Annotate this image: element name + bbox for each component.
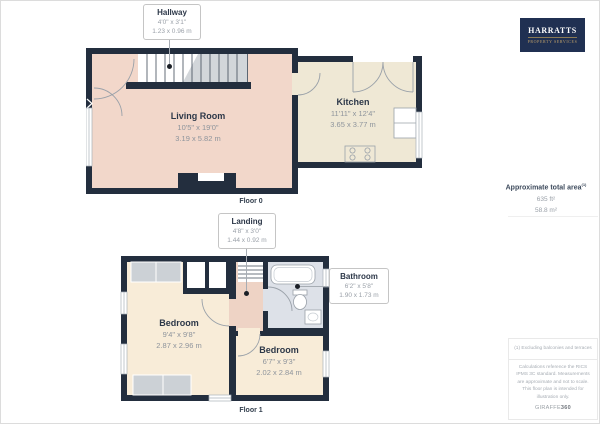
bathroom-label-box: Bathroom 6'2" x 5'8" 1.90 x 1.73 m: [329, 268, 389, 304]
stairs: [138, 54, 248, 82]
giraffe360-credit: GIRAFFE360: [514, 405, 592, 411]
bottom-wall-window: [209, 395, 231, 401]
hallway-leader-dot: [167, 64, 172, 69]
toilet-icon: [293, 290, 307, 310]
wardrobe-bottom: [133, 375, 191, 395]
total-area-title: Approximate total area(1): [491, 182, 600, 191]
hallway-name: Hallway: [148, 8, 196, 17]
footnote-box: (1) Excluding balconies and terraces: [508, 338, 598, 360]
bathtub-icon: [271, 265, 315, 284]
landing-leader-line: [246, 247, 247, 291]
sink-icon: [305, 310, 321, 324]
agency-logo: HARRATTS PROPERTY SERVICES: [520, 18, 585, 52]
footnote-text: (1) Excluding balconies and terraces: [514, 345, 592, 352]
landing-label-box: Landing 4'8" x 3'0" 1.44 x 0.92 m: [218, 213, 276, 249]
footnote-ref: (1): [581, 182, 586, 187]
agency-logo-tagline: PROPERTY SERVICES: [528, 37, 578, 45]
bathroom-leader-dot: [295, 284, 300, 289]
sidebar: HARRATTS PROPERTY SERVICES Approximate t…: [491, 1, 600, 424]
floorplan-page: Hallway 4'0" x 3'1" 1.23 x 0.96 m Living…: [0, 0, 600, 424]
fireplace: [178, 173, 236, 188]
hallway-label-box: Hallway 4'0" x 3'1" 1.23 x 0.96 m: [143, 4, 201, 40]
living-room-window: [86, 108, 92, 166]
sidebar-divider: [508, 216, 598, 217]
living-room-label: Living Room 10'5" x 19'0" 3.19 x 5.82 m: [123, 111, 273, 145]
disclaimer-box: Calculations reference the RICS IPMS 3C …: [508, 359, 598, 420]
hallway-imperial: 4'0" x 3'1": [148, 18, 196, 27]
wardrobe-top: [131, 262, 181, 282]
landing-leader-dot: [244, 291, 249, 296]
total-area-block: Approximate total area(1) 635 ft² 58.8 m…: [491, 182, 600, 214]
disclaimer-text: Calculations reference the RICS IPMS 3C …: [514, 364, 592, 401]
kitchen-label: Kitchen 11'11" x 12'4" 3.65 x 3.77 m: [278, 97, 428, 131]
total-area-metric: 58.8 m²: [491, 207, 600, 214]
bedroom2-label: Bedroom 6'7" x 9'3" 2.02 x 2.84 m: [204, 345, 354, 379]
stairs-wall: [126, 82, 251, 89]
total-area-imperial: 635 ft²: [491, 196, 600, 203]
floor0-label: Floor 0: [176, 198, 326, 205]
cupboards: [183, 262, 229, 294]
agency-logo-brand: HARRATTS: [528, 26, 577, 35]
bathroom-leader-line: [298, 286, 329, 287]
hallway-leader-line: [169, 38, 170, 64]
floor1-label: Floor 1: [176, 407, 326, 414]
landing-stairs: [238, 262, 263, 282]
hallway-metric: 1.23 x 0.96 m: [148, 27, 196, 36]
